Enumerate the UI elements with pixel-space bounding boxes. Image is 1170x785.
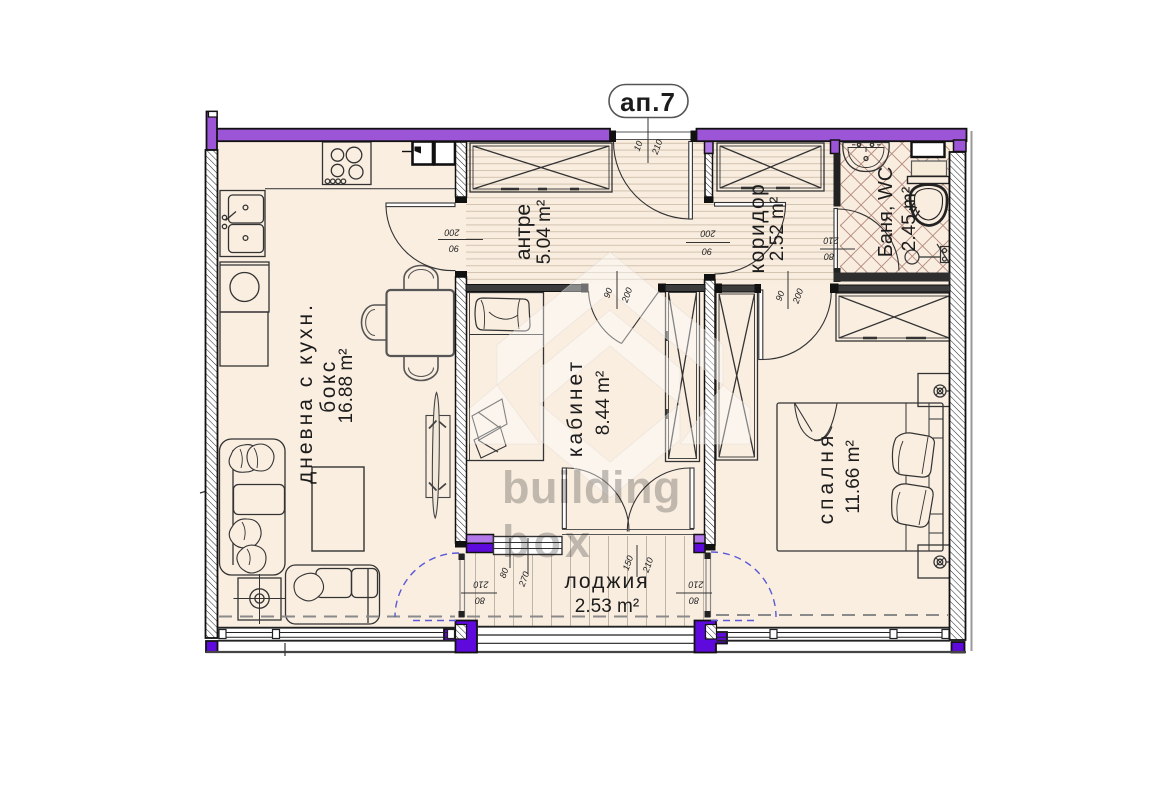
svg-text:2.53 m²: 2.53 m² xyxy=(575,596,639,617)
svg-text:2.52 m²: 2.52 m² xyxy=(767,197,788,261)
svg-text:210: 210 xyxy=(688,580,704,590)
svg-text:5.04 m²: 5.04 m² xyxy=(534,200,555,264)
svg-text:200: 200 xyxy=(700,229,716,239)
svg-text:box: box xyxy=(502,516,594,567)
svg-text:80: 80 xyxy=(824,252,834,262)
svg-text:210: 210 xyxy=(473,580,489,590)
svg-text:80: 80 xyxy=(475,596,485,606)
svg-text:кабинет: кабинет xyxy=(564,359,587,457)
svg-text:80: 80 xyxy=(689,596,699,606)
svg-text:2.45 m²: 2.45 m² xyxy=(899,187,920,251)
svg-text:спалня: спалня xyxy=(815,432,838,525)
svg-text:building: building xyxy=(502,462,681,513)
svg-text:90: 90 xyxy=(449,244,459,254)
svg-text:антре: антре xyxy=(512,204,535,260)
svg-text:200: 200 xyxy=(444,228,460,238)
svg-text:лоджия: лоджия xyxy=(564,570,649,593)
svg-text:ап.7: ап.7 xyxy=(620,87,676,117)
svg-text:210: 210 xyxy=(823,236,839,246)
svg-text:Баня, WC: Баня, WC xyxy=(875,167,897,258)
svg-text:16.88 m²: 16.88 m² xyxy=(336,349,357,424)
svg-text:90: 90 xyxy=(702,247,712,257)
svg-text:11.66 m²: 11.66 m² xyxy=(843,440,864,514)
svg-text:8.44 m²: 8.44 m² xyxy=(593,371,614,435)
svg-text:коридор: коридор xyxy=(746,183,769,274)
svg-text:дневна с кухн.: дневна с кухн. xyxy=(294,302,317,484)
